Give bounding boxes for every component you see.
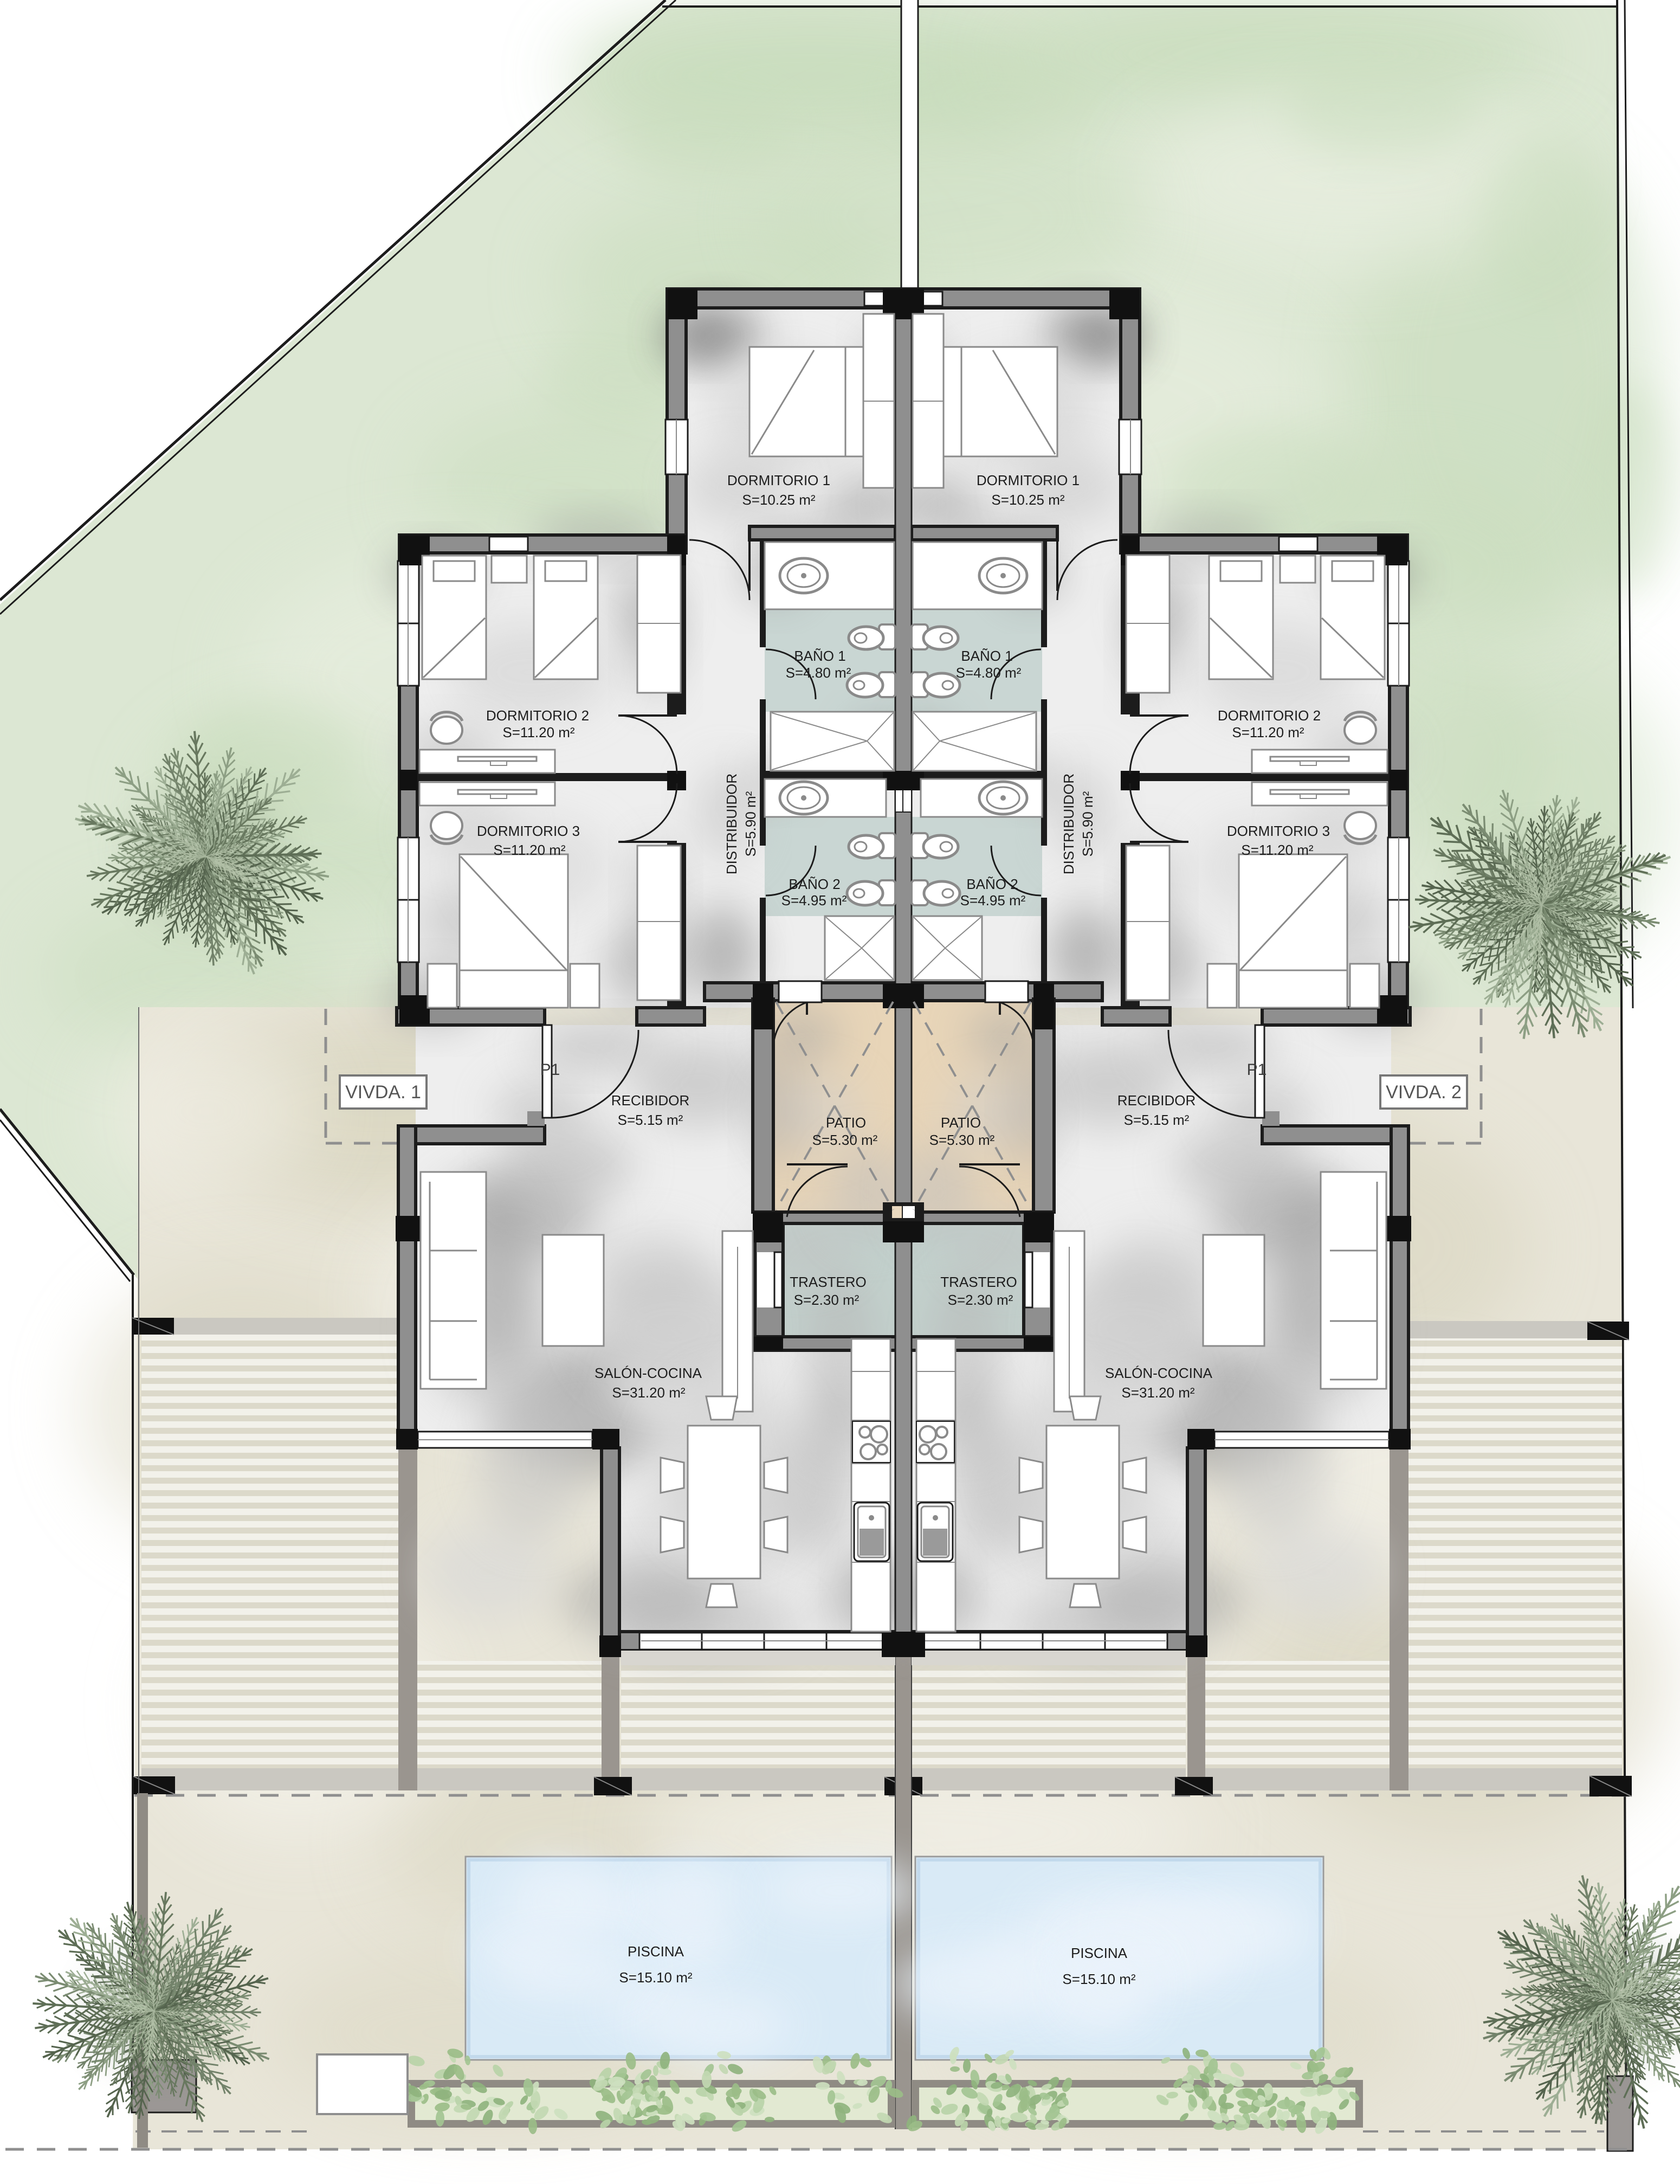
svg-text:S=4.80 m²: S=4.80 m²	[956, 665, 1022, 681]
svg-text:RECIBIDOR: RECIBIDOR	[1117, 1092, 1196, 1109]
svg-text:DORMITORIO 2: DORMITORIO 2	[486, 707, 589, 724]
svg-text:S=5.90 m²: S=5.90 m²	[742, 791, 759, 856]
svg-text:S=11.20 m²: S=11.20 m²	[502, 724, 575, 740]
svg-text:S=5.15 m²: S=5.15 m²	[1124, 1112, 1190, 1128]
svg-text:S=15.10 m²: S=15.10 m²	[619, 1969, 692, 1986]
svg-text:BAÑO 1: BAÑO 1	[961, 648, 1012, 664]
svg-text:S=4.80 m²: S=4.80 m²	[786, 665, 851, 681]
svg-text:S=11.20 m²: S=11.20 m²	[1232, 724, 1304, 740]
svg-text:S=5.15 m²: S=5.15 m²	[618, 1112, 683, 1128]
svg-text:DORMITORIO 1: DORMITORIO 1	[727, 472, 830, 488]
svg-text:S=10.25 m²: S=10.25 m²	[742, 492, 815, 508]
svg-text:S=10.25 m²: S=10.25 m²	[991, 492, 1064, 508]
svg-text:S=5.90 m²: S=5.90 m²	[1080, 791, 1096, 856]
svg-text:PISCINA: PISCINA	[628, 1943, 684, 1960]
svg-text:P1: P1	[1247, 1061, 1267, 1079]
svg-text:S=2.30 m²: S=2.30 m²	[948, 1292, 1013, 1308]
svg-text:TRASTERO: TRASTERO	[790, 1274, 867, 1290]
svg-text:DORMITORIO 1: DORMITORIO 1	[977, 472, 1080, 488]
svg-text:DORMITORIO 2: DORMITORIO 2	[1218, 707, 1321, 724]
svg-text:S=4.95 m²: S=4.95 m²	[960, 892, 1026, 909]
svg-text:S=2.30 m²: S=2.30 m²	[794, 1292, 860, 1308]
svg-text:DORMITORIO 3: DORMITORIO 3	[1227, 823, 1330, 839]
svg-text:PATIO: PATIO	[826, 1114, 866, 1131]
svg-text:TRASTERO: TRASTERO	[940, 1274, 1017, 1290]
svg-text:SALÓN-COCINA: SALÓN-COCINA	[595, 1365, 702, 1381]
svg-text:RECIBIDOR: RECIBIDOR	[611, 1092, 689, 1109]
svg-text:DISTRIBUIDOR: DISTRIBUIDOR	[1061, 774, 1077, 874]
svg-text:BAÑO 1: BAÑO 1	[794, 648, 845, 664]
svg-text:PATIO: PATIO	[941, 1114, 981, 1131]
svg-text:S=11.20 m²: S=11.20 m²	[1241, 842, 1314, 858]
svg-text:P1: P1	[540, 1061, 560, 1079]
svg-text:S=15.10 m²: S=15.10 m²	[1062, 1971, 1135, 1987]
svg-text:DORMITORIO 3: DORMITORIO 3	[477, 823, 580, 839]
svg-text:S=31.20 m²: S=31.20 m²	[1121, 1384, 1194, 1401]
svg-text:S=11.20 m²: S=11.20 m²	[493, 842, 566, 858]
svg-text:S=5.30 m²: S=5.30 m²	[812, 1132, 878, 1148]
svg-text:PISCINA: PISCINA	[1071, 1945, 1128, 1961]
svg-text:S=31.20 m²: S=31.20 m²	[612, 1384, 685, 1401]
svg-text:BAÑO 2: BAÑO 2	[789, 876, 840, 892]
svg-text:DISTRIBUIDOR: DISTRIBUIDOR	[723, 774, 740, 874]
svg-text:S=5.30 m²: S=5.30 m²	[929, 1132, 995, 1148]
svg-text:SALÓN-COCINA: SALÓN-COCINA	[1105, 1365, 1213, 1381]
svg-text:BAÑO 2: BAÑO 2	[966, 876, 1018, 892]
svg-text:VIVDA. 2: VIVDA. 2	[1386, 1082, 1462, 1103]
svg-text:VIVDA. 1: VIVDA. 1	[345, 1082, 421, 1103]
svg-text:S=4.95 m²: S=4.95 m²	[781, 892, 847, 909]
